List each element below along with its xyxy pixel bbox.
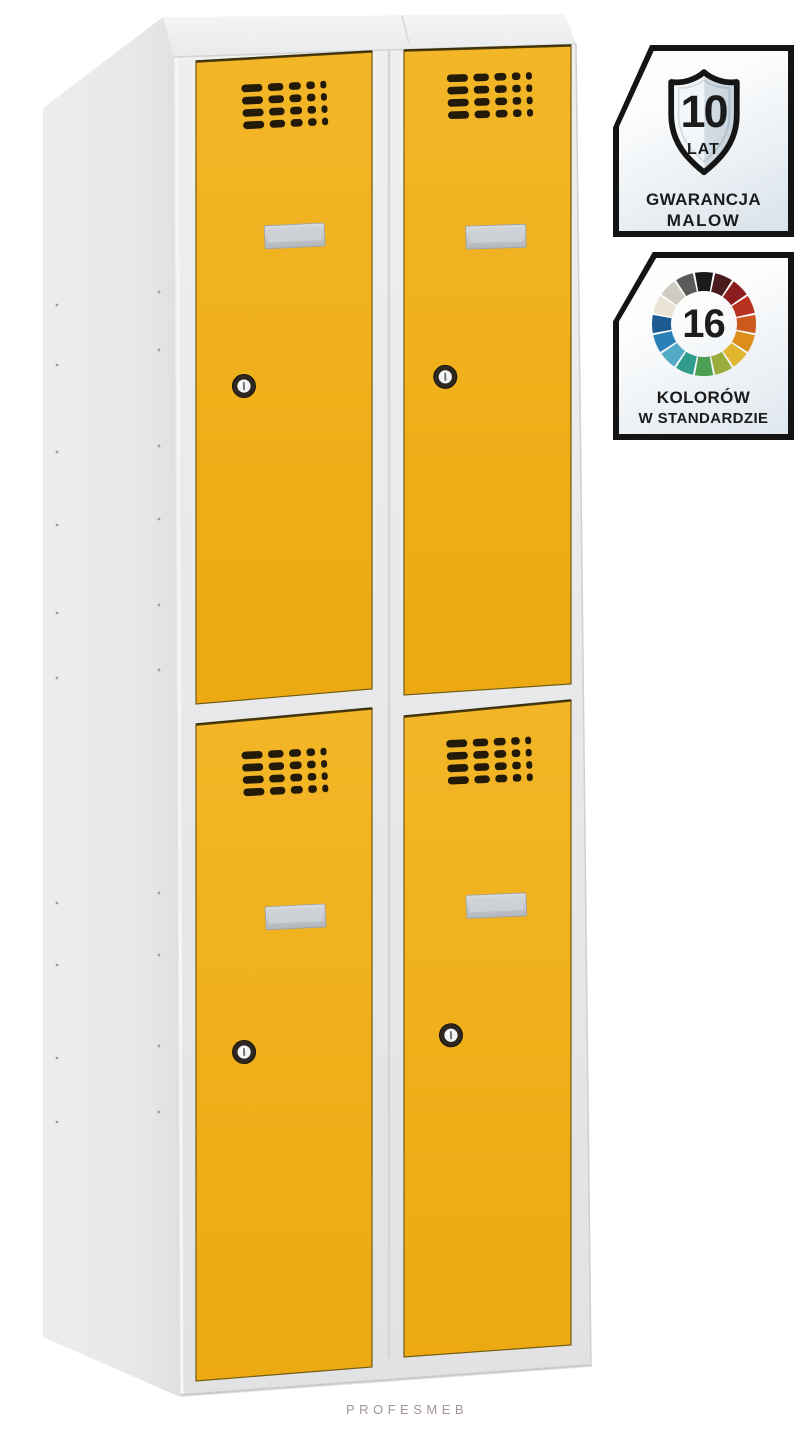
shield-icon: 10 LAT xyxy=(663,67,745,176)
warranty-caption: GWARANCJA MALOW xyxy=(646,188,761,231)
label-holder xyxy=(466,893,527,919)
warranty-caption-line1: GWARANCJA xyxy=(646,190,761,210)
door-upper-left xyxy=(196,51,372,704)
locker-side-panel xyxy=(43,17,180,1397)
product-photo-stage: 10 LAT GWARANCJA MALOW 16 KOLORÓW W STAN… xyxy=(0,0,800,1433)
warranty-years-unit: LAT xyxy=(663,141,745,159)
colors-count-value: 16 xyxy=(646,304,762,344)
cylinder-lock xyxy=(232,374,256,398)
cylinder-lock xyxy=(232,1040,256,1064)
door-lower-left xyxy=(196,708,372,1381)
colors-badge: 16 KOLORÓW W STANDARDZIE xyxy=(613,252,794,440)
door-lower-right xyxy=(404,700,571,1357)
watermark-text: PROFESMEB xyxy=(0,1402,800,1417)
warranty-caption-line2: MALOW xyxy=(646,211,761,231)
warranty-years-value: 10 xyxy=(663,89,745,134)
door-upper-right xyxy=(404,45,571,695)
colors-caption-line2: W STANDARDZIE xyxy=(639,410,769,427)
label-holder xyxy=(264,223,325,249)
warranty-badge-body: 10 LAT GWARANCJA MALOW xyxy=(619,51,788,231)
colors-badge-body: 16 KOLORÓW W STANDARDZIE xyxy=(619,258,788,434)
label-holder xyxy=(265,904,326,930)
colors-caption: KOLORÓW W STANDARDZIE xyxy=(639,386,769,427)
color-wheel-segment xyxy=(694,272,712,292)
color-wheel-segment xyxy=(694,356,712,376)
label-holder xyxy=(466,224,527,249)
color-wheel-icon: 16 xyxy=(646,266,762,382)
cylinder-lock xyxy=(439,1023,463,1047)
warranty-badge: 10 LAT GWARANCJA MALOW xyxy=(613,45,794,237)
colors-caption-line1: KOLORÓW xyxy=(639,388,769,408)
cylinder-lock xyxy=(433,365,457,389)
